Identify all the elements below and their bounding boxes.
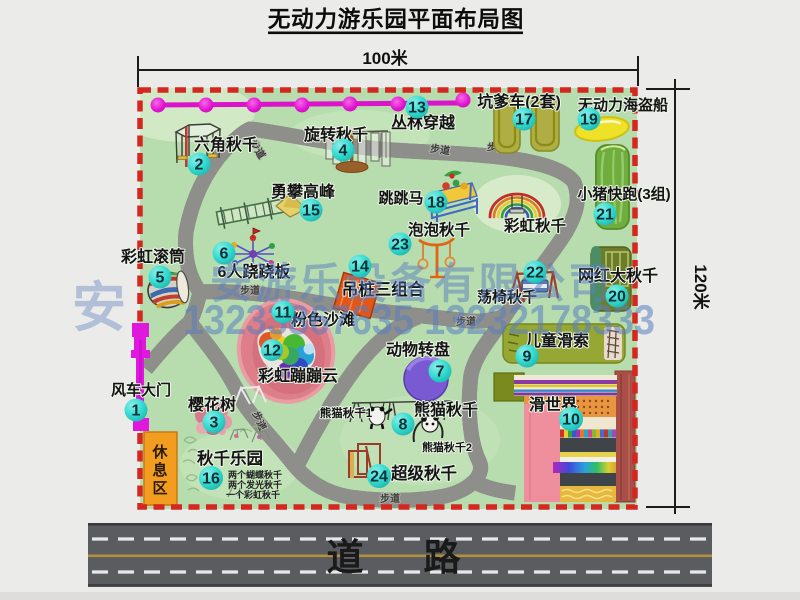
svg-text:小猪快跑(3组): 小猪快跑(3组)	[577, 185, 670, 203]
svg-text:步道: 步道	[380, 492, 400, 505]
svg-text:一个彩虹秋千: 一个彩虹秋千	[226, 489, 280, 500]
svg-text:区: 区	[152, 480, 167, 497]
svg-text:22: 22	[526, 265, 544, 282]
svg-text:19: 19	[580, 112, 598, 129]
svg-text:4: 4	[339, 143, 348, 160]
svg-text:120米: 120米	[691, 264, 711, 310]
svg-text:息: 息	[152, 461, 167, 479]
svg-text:无动力游乐园平面布局图: 无动力游乐园平面布局图	[268, 6, 524, 32]
svg-text:5: 5	[156, 270, 165, 287]
svg-text:熊猫秋千: 熊猫秋千	[414, 400, 478, 419]
svg-text:11: 11	[275, 305, 292, 322]
svg-text:17: 17	[515, 112, 533, 129]
svg-text:安: 安	[72, 278, 126, 338]
svg-text:勇攀高峰: 勇攀高峰	[271, 182, 336, 201]
svg-text:熊猫秋千2: 熊猫秋千2	[422, 440, 472, 454]
svg-text:熊猫秋千1: 熊猫秋千1	[320, 406, 373, 420]
svg-text:9: 9	[523, 349, 532, 366]
svg-text:20: 20	[608, 289, 626, 306]
svg-text:13233867635 13232178333: 13233867635 13232178333	[183, 296, 655, 343]
svg-text:18: 18	[427, 195, 445, 212]
svg-text:秋千乐园: 秋千乐园	[197, 448, 263, 468]
svg-text:风车大门: 风车大门	[111, 381, 171, 399]
svg-text:跳跳马: 跳跳马	[378, 189, 423, 207]
svg-text:六角秋千: 六角秋千	[194, 135, 258, 154]
svg-text:100米: 100米	[362, 48, 408, 68]
svg-text:14: 14	[351, 259, 369, 276]
svg-text:泡泡秋千: 泡泡秋千	[408, 220, 471, 239]
svg-text:6: 6	[220, 246, 229, 263]
svg-text:1: 1	[132, 403, 141, 420]
svg-text:道: 道	[327, 537, 364, 578]
svg-text:10: 10	[562, 412, 580, 429]
svg-text:两个发光秋千: 两个发光秋千	[228, 479, 282, 490]
svg-text:旋转秋千: 旋转秋千	[303, 125, 368, 144]
svg-text:彩虹秋千: 彩虹秋千	[503, 216, 567, 235]
svg-text:坑爹车(2套): 坑爹车(2套)	[477, 92, 561, 111]
svg-text:两个蝴蝶秋千: 两个蝴蝶秋千	[228, 469, 282, 480]
svg-text:13: 13	[408, 100, 426, 117]
svg-text:3: 3	[210, 415, 219, 432]
svg-text:彩虹蹦蹦云: 彩虹蹦蹦云	[257, 366, 338, 385]
svg-text:路: 路	[424, 537, 462, 578]
svg-text:超级秋千: 超级秋千	[391, 463, 457, 483]
svg-text:2: 2	[195, 157, 204, 174]
svg-text:12: 12	[263, 343, 281, 360]
svg-text:23: 23	[391, 237, 409, 254]
svg-text:休: 休	[151, 443, 168, 461]
svg-text:15: 15	[302, 203, 320, 220]
svg-text:16: 16	[202, 471, 220, 488]
svg-text:24: 24	[370, 469, 388, 486]
svg-text:21: 21	[596, 207, 614, 224]
svg-text:彩虹滚筒: 彩虹滚筒	[120, 247, 185, 266]
svg-text:8: 8	[399, 417, 408, 434]
svg-text:7: 7	[436, 364, 445, 381]
